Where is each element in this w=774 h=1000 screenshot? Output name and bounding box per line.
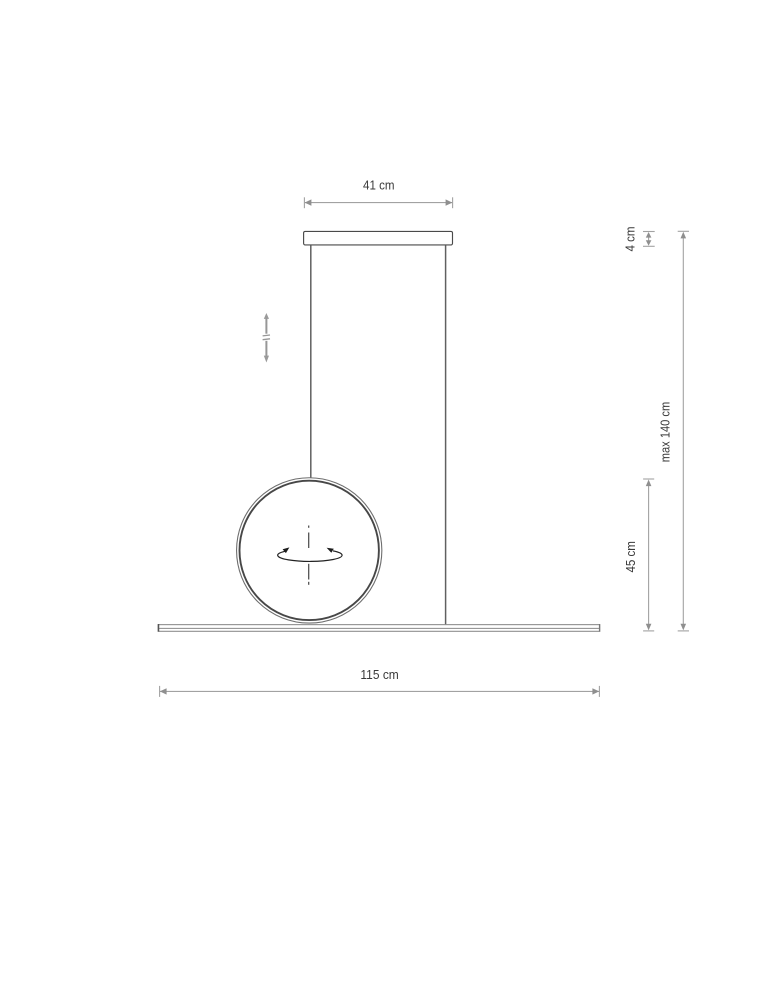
svg-text:41 cm: 41 cm — [363, 178, 395, 193]
svg-text:115 cm: 115 cm — [360, 667, 398, 682]
svg-text:max 140 cm: max 140 cm — [658, 402, 673, 463]
svg-text:4 cm: 4 cm — [622, 227, 637, 252]
svg-text:45 cm: 45 cm — [623, 541, 638, 573]
